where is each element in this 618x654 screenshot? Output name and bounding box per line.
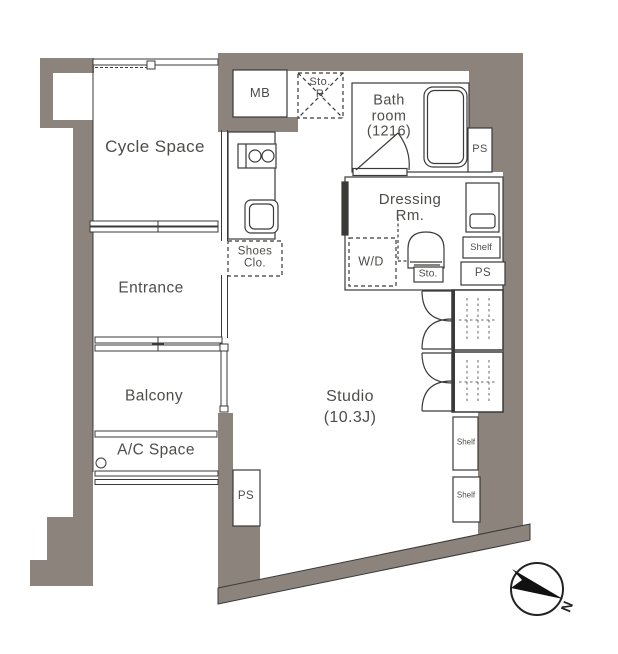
toilet-icon: [408, 232, 444, 268]
wall-top-band: [218, 53, 523, 71]
label-shelf-mid: Shelf: [457, 439, 475, 448]
compass-needle: [511, 569, 563, 599]
studio-west-window-end: [220, 406, 228, 412]
wall-left-strip: [40, 58, 53, 128]
label-bathroom-line3: (1216): [367, 125, 411, 141]
ac-outlet-symbol: [96, 458, 106, 468]
closet-door-arcs: [422, 291, 452, 411]
label-ac-space: A/C Space: [117, 443, 195, 460]
boundaries: [90, 59, 228, 485]
cycle-top-marker: [147, 61, 155, 69]
label-ps-right: PS: [475, 267, 491, 279]
label-balcony: Balcony: [125, 389, 183, 406]
closet: [422, 290, 503, 412]
label-studio-line2: (10.3J): [324, 408, 377, 429]
label-sto-r-line2: R: [309, 89, 330, 101]
cycle-bottom-window-2: [90, 227, 218, 232]
label-studio-line1: Studio: [324, 387, 377, 408]
floor-plan: N Cycle Space MB Sto. R Bath room (1216)…: [0, 0, 618, 654]
wall-left-bottom-block: [30, 560, 93, 586]
label-mb: MB: [250, 86, 270, 100]
wall-right-lower: [478, 412, 523, 538]
wall-left-lower-block: [47, 517, 93, 567]
bathtub-icon: [424, 87, 467, 167]
wall-top-right-corner: [469, 71, 523, 128]
wall-bottom-diagonal: [218, 524, 530, 604]
dressing-door-bar: [342, 182, 348, 235]
compass: N: [511, 563, 576, 615]
label-ps-top: PS: [472, 144, 487, 156]
label-dressing-line2: Rm.: [379, 208, 441, 224]
washbasin-icon: [466, 183, 499, 232]
ac-bottom-rail-1: [95, 471, 218, 476]
label-bathroom-line1: Bath: [367, 94, 411, 110]
wall-left-step: [40, 120, 93, 128]
label-shelf-upper: Shelf: [470, 243, 492, 253]
sink-icon: [245, 200, 278, 233]
label-bathroom: Bath room (1216): [367, 94, 411, 141]
label-wd: W/D: [358, 255, 384, 269]
label-cycle-space: Cycle Space: [105, 138, 205, 156]
wall-right-of-ps: [492, 128, 523, 172]
wall-left-column: [73, 128, 93, 518]
stove-icon: [238, 144, 276, 168]
balcony-ac-divider: [95, 431, 217, 437]
label-shoes-line1: Shoes: [238, 246, 273, 258]
label-sto-r: Sto. R: [309, 77, 330, 101]
wall-left-lower-column: [218, 413, 233, 595]
wall-mb-band: [222, 117, 298, 132]
label-shelf-low: Shelf: [457, 492, 475, 501]
label-ps-bottom: PS: [238, 490, 254, 502]
label-entrance: Entrance: [118, 281, 183, 298]
label-shoes-line2: Clo.: [238, 258, 273, 270]
label-studio: Studio (10.3J): [324, 387, 377, 429]
label-dressing-line1: Dressing: [379, 192, 441, 208]
label-dressing-room: Dressing Rm.: [379, 192, 441, 224]
wall-right: [503, 172, 523, 418]
label-shoes-closet: Shoes Clo.: [238, 246, 273, 271]
ac-bottom-rail-2: [95, 480, 218, 485]
cycle-bottom-window-1: [90, 221, 218, 226]
wall-under-ps-bottom: [233, 524, 260, 585]
balcony-window-corner: [220, 344, 228, 351]
label-bathroom-line2: room: [367, 109, 411, 125]
label-sto: Sto.: [419, 268, 438, 279]
